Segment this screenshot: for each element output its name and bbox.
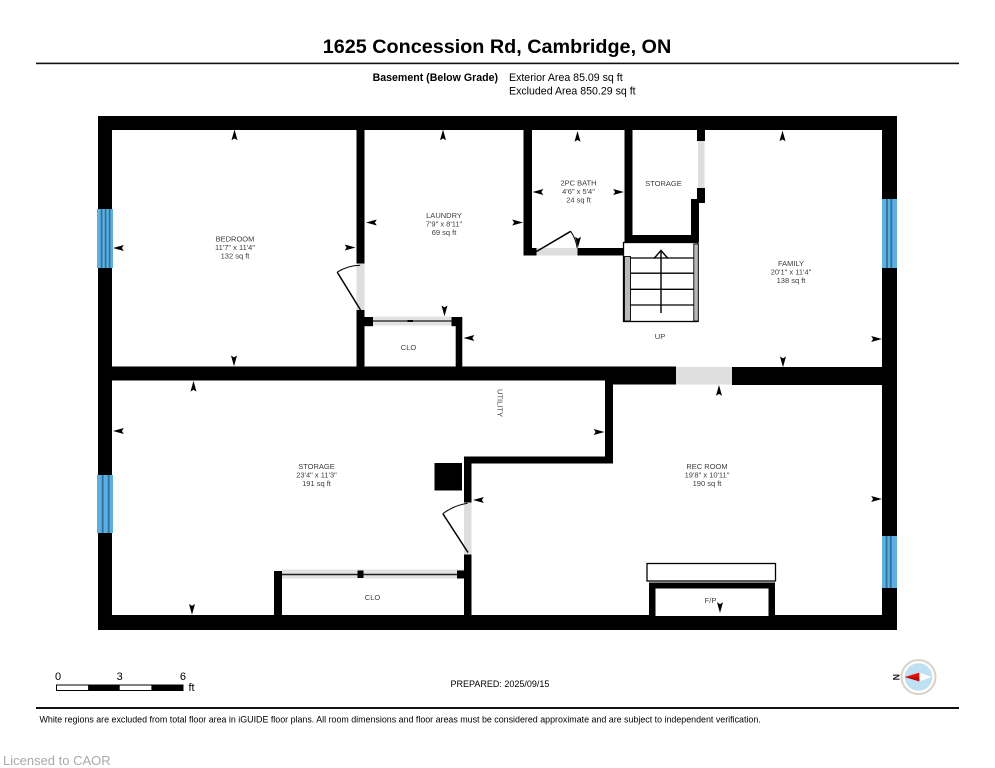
svg-text:190 sq ft: 190 sq ft xyxy=(693,479,723,488)
svg-text:132 sq ft: 132 sq ft xyxy=(221,252,251,261)
svg-text:1625 Concession Rd, Cambridge,: 1625 Concession Rd, Cambridge, ON xyxy=(323,36,671,58)
svg-text:Basement (Below Grade): Basement (Below Grade) xyxy=(373,72,498,84)
svg-text:N: N xyxy=(891,674,901,680)
svg-text:White regions are excluded fro: White regions are excluded from total fl… xyxy=(40,715,761,725)
svg-text:138 sq ft: 138 sq ft xyxy=(777,276,807,285)
svg-text:UP: UP xyxy=(655,332,665,341)
svg-text:STORAGE: STORAGE xyxy=(645,179,682,188)
svg-text:ft: ft xyxy=(189,682,195,694)
svg-text:191 sq ft: 191 sq ft xyxy=(302,479,332,488)
svg-text:PREPARED: 2025/09/15: PREPARED: 2025/09/15 xyxy=(451,679,550,689)
svg-text:F/P: F/P xyxy=(705,596,717,605)
svg-text:6: 6 xyxy=(180,671,186,683)
svg-text:CLO: CLO xyxy=(365,593,381,602)
svg-text:Exterior Area 85.09 sq ft: Exterior Area 85.09 sq ft xyxy=(509,72,623,84)
svg-text:Excluded Area 850.29 sq ft: Excluded Area 850.29 sq ft xyxy=(509,86,636,98)
svg-text:3: 3 xyxy=(117,671,123,683)
svg-text:69 sq ft: 69 sq ft xyxy=(432,228,458,237)
svg-text:CLO: CLO xyxy=(401,343,417,352)
svg-text:0: 0 xyxy=(55,671,61,683)
svg-text:UTILITY: UTILITY xyxy=(496,389,505,417)
svg-text:Licensed to CAOR: Licensed to CAOR xyxy=(3,753,111,768)
svg-text:24 sq ft: 24 sq ft xyxy=(566,196,592,205)
